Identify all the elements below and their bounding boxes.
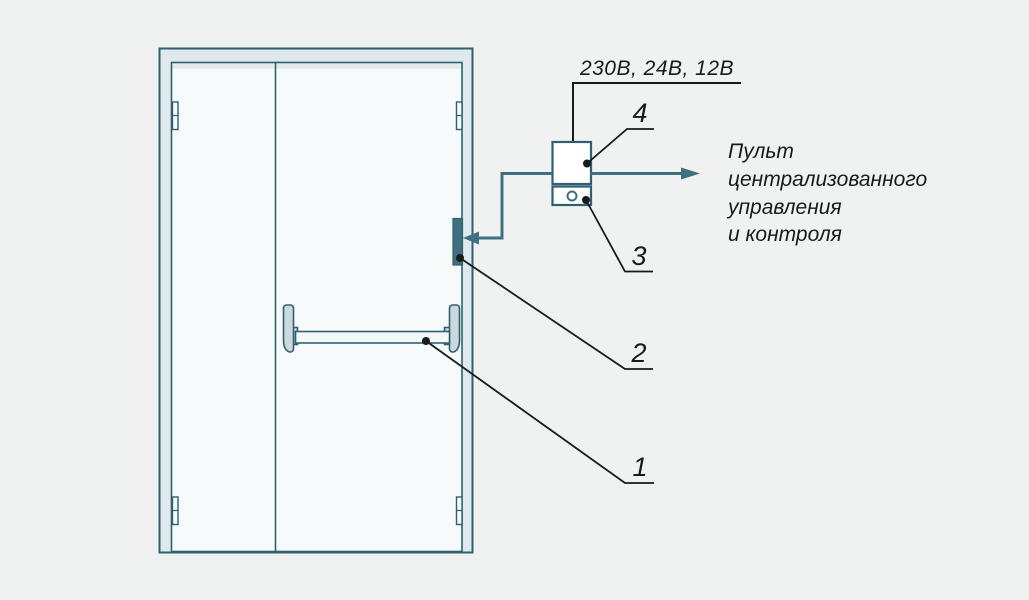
lintel-shadow [173, 64, 462, 69]
hinge-bottom-left [173, 497, 179, 525]
callout-2: 2 [456, 254, 653, 369]
controller-unit [553, 142, 592, 205]
indicator-lamp [568, 192, 577, 201]
door-assembly [160, 49, 473, 553]
push-bar-bracket-right [450, 305, 460, 352]
hinge-top-right [457, 102, 463, 130]
push-bar-bracket-left [284, 305, 294, 352]
callout-2-number: 2 [630, 338, 646, 368]
callout-4-number: 4 [632, 98, 647, 128]
door-leaves [172, 63, 463, 552]
arrowhead-to-panel-icon [681, 168, 700, 180]
hinge-top-left [173, 102, 179, 130]
power-line [573, 83, 741, 142]
callout-1-number: 1 [632, 452, 647, 482]
wire-to-lock [478, 174, 552, 239]
callout-3-number: 3 [631, 241, 646, 271]
power-supply-line: 230В, 24В, 12В [573, 57, 741, 142]
callout-3: 3 [582, 196, 653, 272]
central-panel-caption: Пульт централизованного управления и кон… [726, 140, 933, 246]
callout-4: 4 [583, 98, 654, 168]
voltage-label: 230В, 24В, 12В [579, 57, 734, 80]
door-control-diagram: 230В, 24В, 12В Пульт централизованного у… [0, 0, 1029, 600]
hinge-bottom-right [457, 497, 463, 525]
diagram-stage: 230В, 24В, 12В Пульт централизованного у… [0, 0, 1029, 600]
